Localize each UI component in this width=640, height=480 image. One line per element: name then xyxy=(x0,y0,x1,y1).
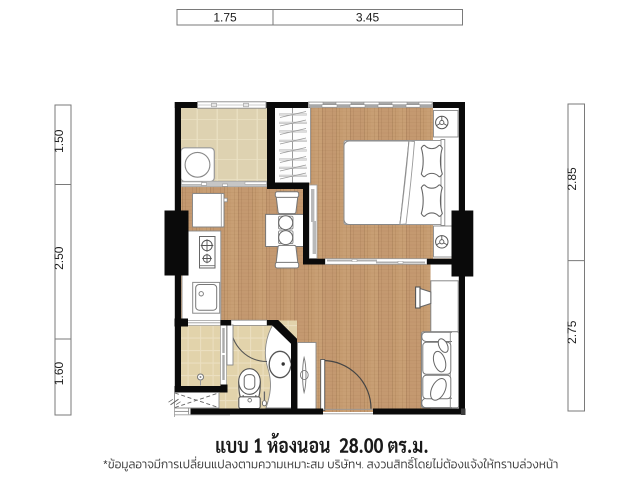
svg-text:1.60: 1.60 xyxy=(52,361,66,385)
svg-text:2.85: 2.85 xyxy=(565,167,579,191)
svg-text:1.75: 1.75 xyxy=(213,11,237,25)
svg-text:1.50: 1.50 xyxy=(52,129,66,153)
svg-text:2.50: 2.50 xyxy=(52,246,66,270)
svg-text:2.75: 2.75 xyxy=(565,320,579,344)
svg-text:3.45: 3.45 xyxy=(356,11,380,25)
